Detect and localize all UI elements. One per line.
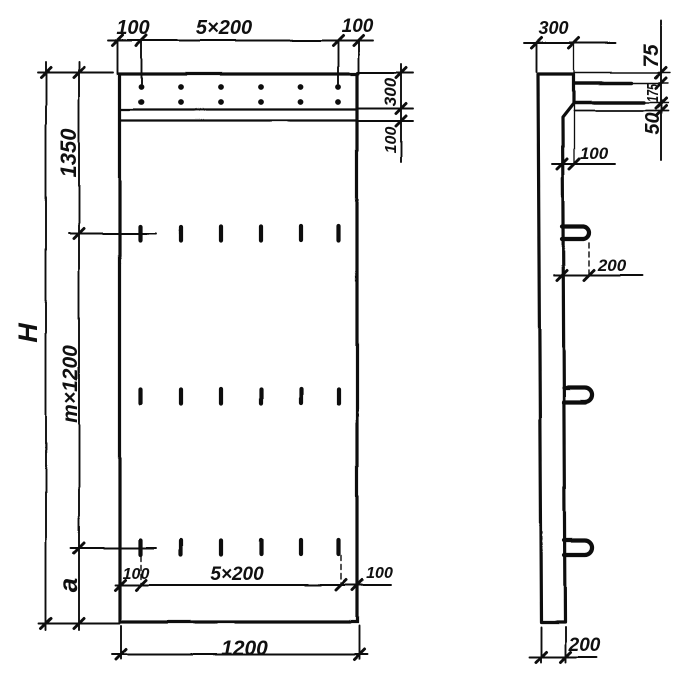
svg-text:100: 100	[580, 144, 609, 163]
svg-text:300: 300	[538, 18, 568, 38]
svg-text:100: 100	[342, 16, 374, 37]
svg-text:H: H	[13, 323, 43, 343]
svg-text:175: 175	[645, 83, 662, 102]
svg-text:200: 200	[597, 256, 627, 275]
svg-text:300: 300	[381, 77, 400, 106]
svg-text:5×200: 5×200	[210, 564, 264, 585]
svg-text:1350: 1350	[56, 128, 81, 178]
svg-text:100: 100	[383, 127, 400, 154]
svg-text:100: 100	[116, 17, 149, 39]
svg-text:50: 50	[642, 112, 664, 134]
svg-text:75: 75	[640, 44, 663, 68]
svg-text:200: 200	[568, 635, 601, 656]
svg-text:5×200: 5×200	[196, 17, 252, 39]
svg-text:m×1200: m×1200	[59, 345, 82, 423]
svg-text:a: a	[53, 578, 83, 592]
svg-text:1200: 1200	[221, 637, 268, 660]
svg-text:100: 100	[366, 565, 393, 582]
svg-text:100: 100	[123, 566, 150, 583]
